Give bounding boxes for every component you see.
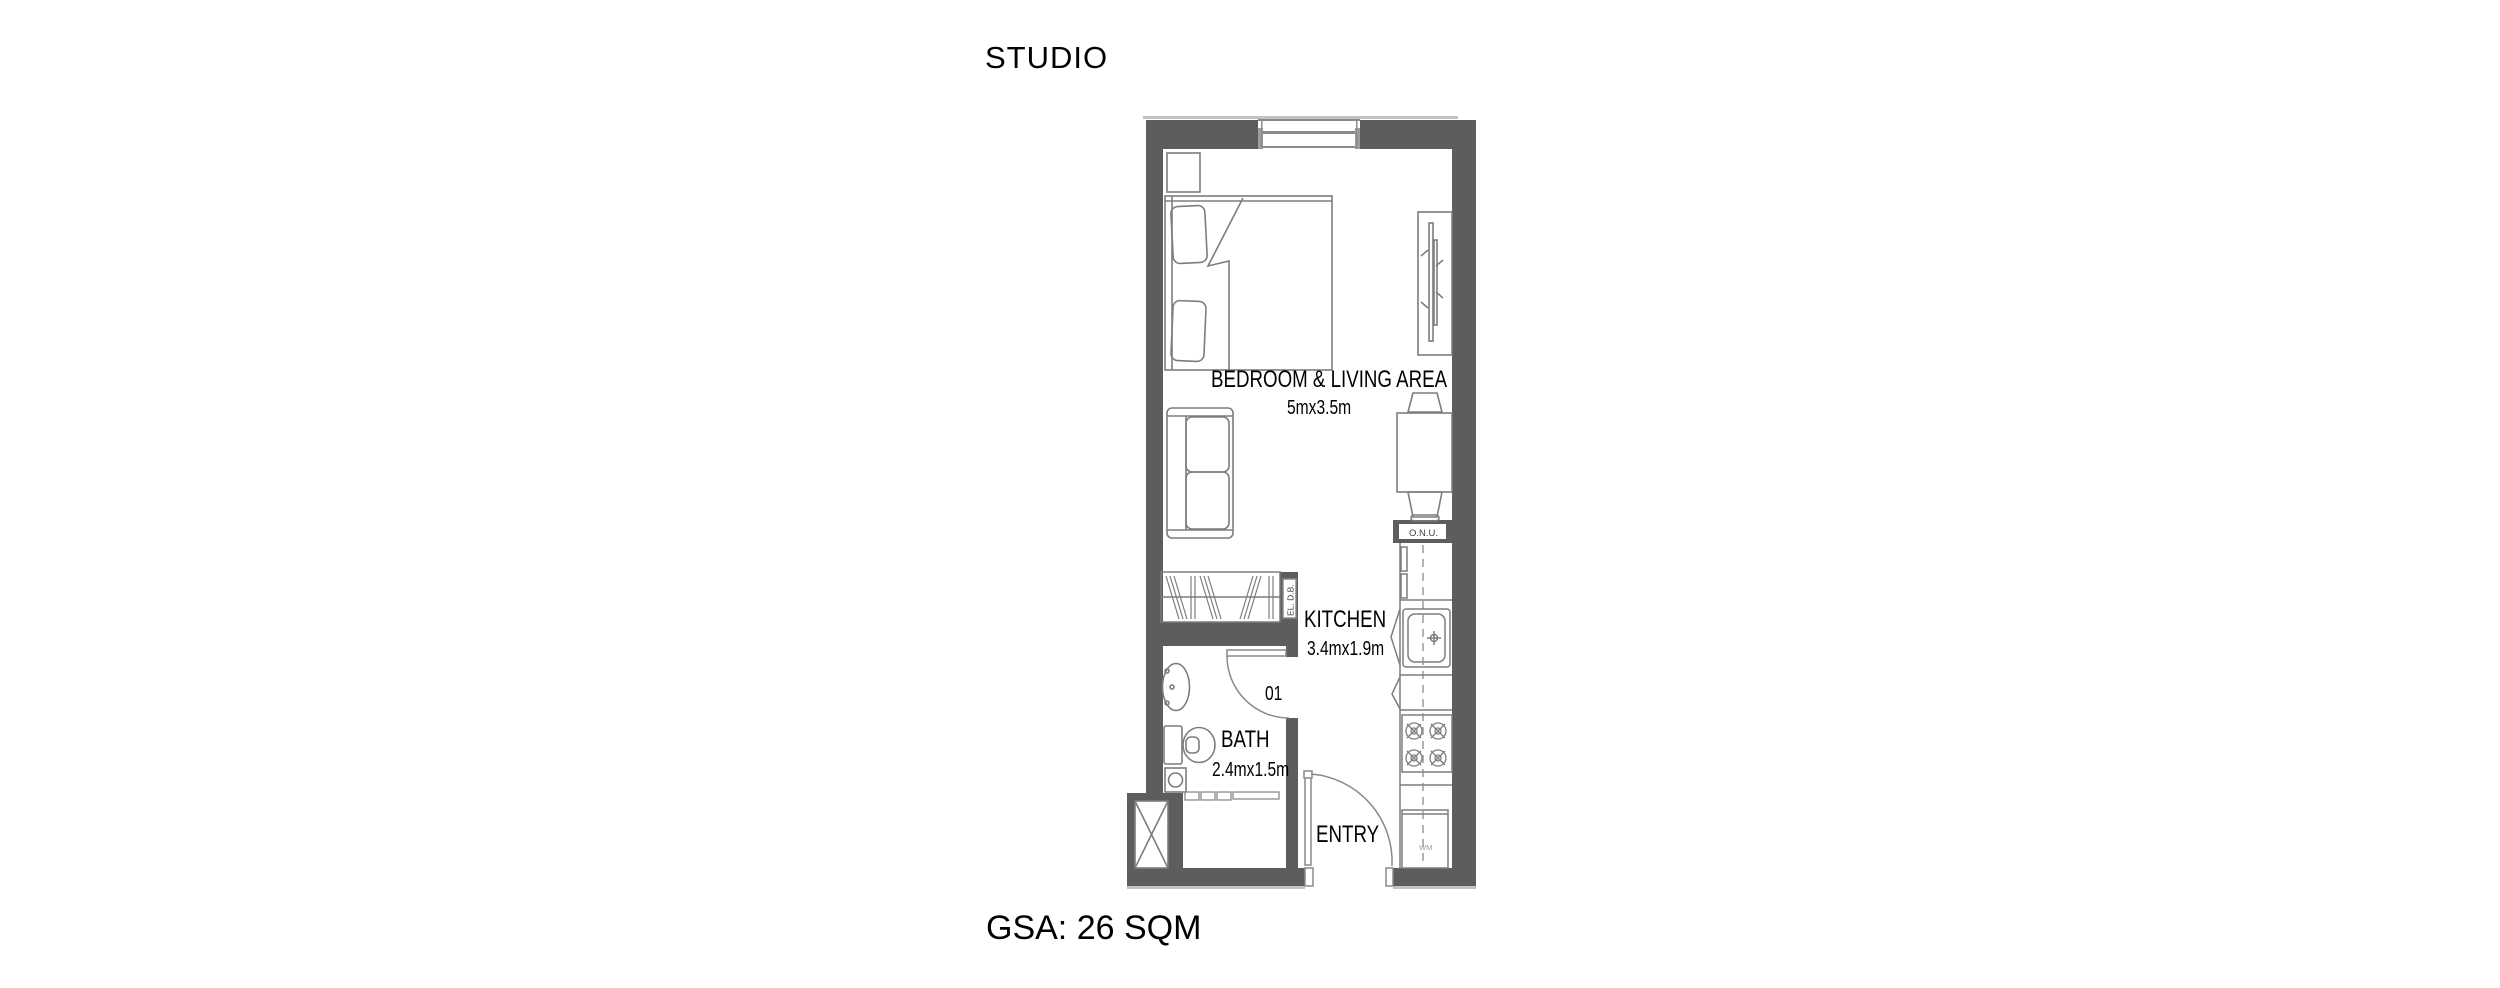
entry-jamb-right bbox=[1386, 868, 1393, 886]
room-label-bath: BATH bbox=[1221, 728, 1270, 752]
sofa-cushion bbox=[1186, 472, 1229, 529]
cabinet-stile bbox=[1401, 547, 1407, 571]
cabinet-door-chevron bbox=[1392, 677, 1400, 709]
door-number-label: 01 bbox=[1265, 684, 1282, 704]
stove-burners bbox=[1406, 723, 1446, 766]
room-label-kitchen: KITCHEN bbox=[1304, 608, 1386, 632]
onu-label: O.N.U. bbox=[1409, 528, 1438, 539]
wall-bottom-left bbox=[1127, 868, 1305, 886]
wall-top-left bbox=[1146, 120, 1258, 149]
wall-shaft-top bbox=[1127, 793, 1183, 801]
tv-panel bbox=[1418, 212, 1452, 355]
wall-bath-stub bbox=[1286, 646, 1298, 657]
dining-chair-bottom bbox=[1408, 492, 1442, 517]
wall-left bbox=[1146, 149, 1163, 793]
edge-line-bottom-right bbox=[1393, 886, 1476, 889]
plan-title: STUDIO bbox=[985, 42, 1108, 73]
sofa bbox=[1167, 408, 1233, 538]
pillow bbox=[1171, 300, 1207, 361]
blanket-fold-line bbox=[1208, 198, 1243, 370]
entry-door-swing-arc bbox=[1311, 774, 1392, 866]
tv-bracket-tick bbox=[1421, 302, 1428, 308]
washbasin-tap-dot bbox=[1170, 685, 1174, 689]
cabinet-door-chevron bbox=[1391, 609, 1400, 665]
tv-bracket-tick bbox=[1421, 250, 1428, 256]
toilet-tank bbox=[1164, 726, 1182, 764]
wall-right bbox=[1452, 120, 1476, 886]
tv-shelf-bar bbox=[1434, 240, 1437, 325]
window bbox=[1258, 119, 1360, 149]
burner bbox=[1406, 723, 1422, 739]
washbasin bbox=[1163, 664, 1190, 711]
window-frame-left bbox=[1261, 119, 1263, 149]
cabinet-stile bbox=[1401, 574, 1407, 598]
window-outer-line bbox=[1258, 119, 1360, 121]
room-label-bedroom: BEDROOM & LIVING AREA bbox=[1211, 368, 1447, 392]
burner bbox=[1430, 723, 1446, 739]
washing-machine bbox=[1402, 810, 1448, 868]
floor-plan-page: EL. D.B. bbox=[0, 0, 2500, 988]
room-dims-bedroom: 5mx3.5m bbox=[1287, 398, 1351, 418]
room-dims-bath: 2.4mx1.5m bbox=[1212, 760, 1289, 780]
window-frame-right bbox=[1356, 119, 1358, 149]
gsa-area-label: GSA: 26 SQM bbox=[986, 911, 1201, 945]
wall-wardrobe-band bbox=[1146, 622, 1298, 646]
floor-drain-circle bbox=[1169, 773, 1183, 787]
entry-door-leaf bbox=[1305, 772, 1311, 865]
dining-table bbox=[1397, 413, 1452, 492]
dining-chair-top bbox=[1408, 393, 1442, 412]
edge-line-top bbox=[1143, 116, 1458, 119]
bed bbox=[1165, 196, 1332, 370]
kitchen-sink bbox=[1403, 609, 1450, 667]
bath-door-leaf bbox=[1227, 650, 1286, 656]
wall-shaft-right bbox=[1168, 801, 1183, 868]
room-dims-kitchen: 3.4mx1.9m bbox=[1307, 639, 1384, 659]
entry-door-hinge-cap bbox=[1304, 771, 1312, 778]
wall-bath-right bbox=[1286, 718, 1298, 868]
room-label-entry: ENTRY bbox=[1316, 823, 1379, 847]
edge-line-bottom-left bbox=[1127, 886, 1305, 889]
kitchen-counter: WM O.N.U. bbox=[1391, 524, 1452, 868]
sink-faucet-cross bbox=[1427, 631, 1441, 645]
burner bbox=[1430, 750, 1446, 766]
tv-screen-bar bbox=[1429, 223, 1433, 341]
bedroom-living-furniture bbox=[1165, 153, 1452, 538]
bath-threshold-tiles bbox=[1185, 792, 1279, 800]
washing-machine-label: WM bbox=[1419, 843, 1432, 852]
sofa-cushion bbox=[1186, 417, 1229, 472]
floor-plan-drawing: EL. D.B. bbox=[0, 0, 2500, 988]
toilet-seat-inner bbox=[1186, 737, 1199, 753]
wardrobe: EL. D.B. bbox=[1161, 572, 1296, 622]
entry-jamb-left bbox=[1305, 868, 1313, 886]
wall-bottom-right bbox=[1393, 868, 1476, 886]
nightstand bbox=[1167, 153, 1200, 192]
pillow bbox=[1171, 205, 1208, 264]
window-mid-line bbox=[1262, 131, 1356, 134]
burner bbox=[1406, 750, 1422, 766]
electrical-db-label: EL. D.B. bbox=[1286, 584, 1296, 616]
window-inner-line bbox=[1262, 146, 1356, 148]
